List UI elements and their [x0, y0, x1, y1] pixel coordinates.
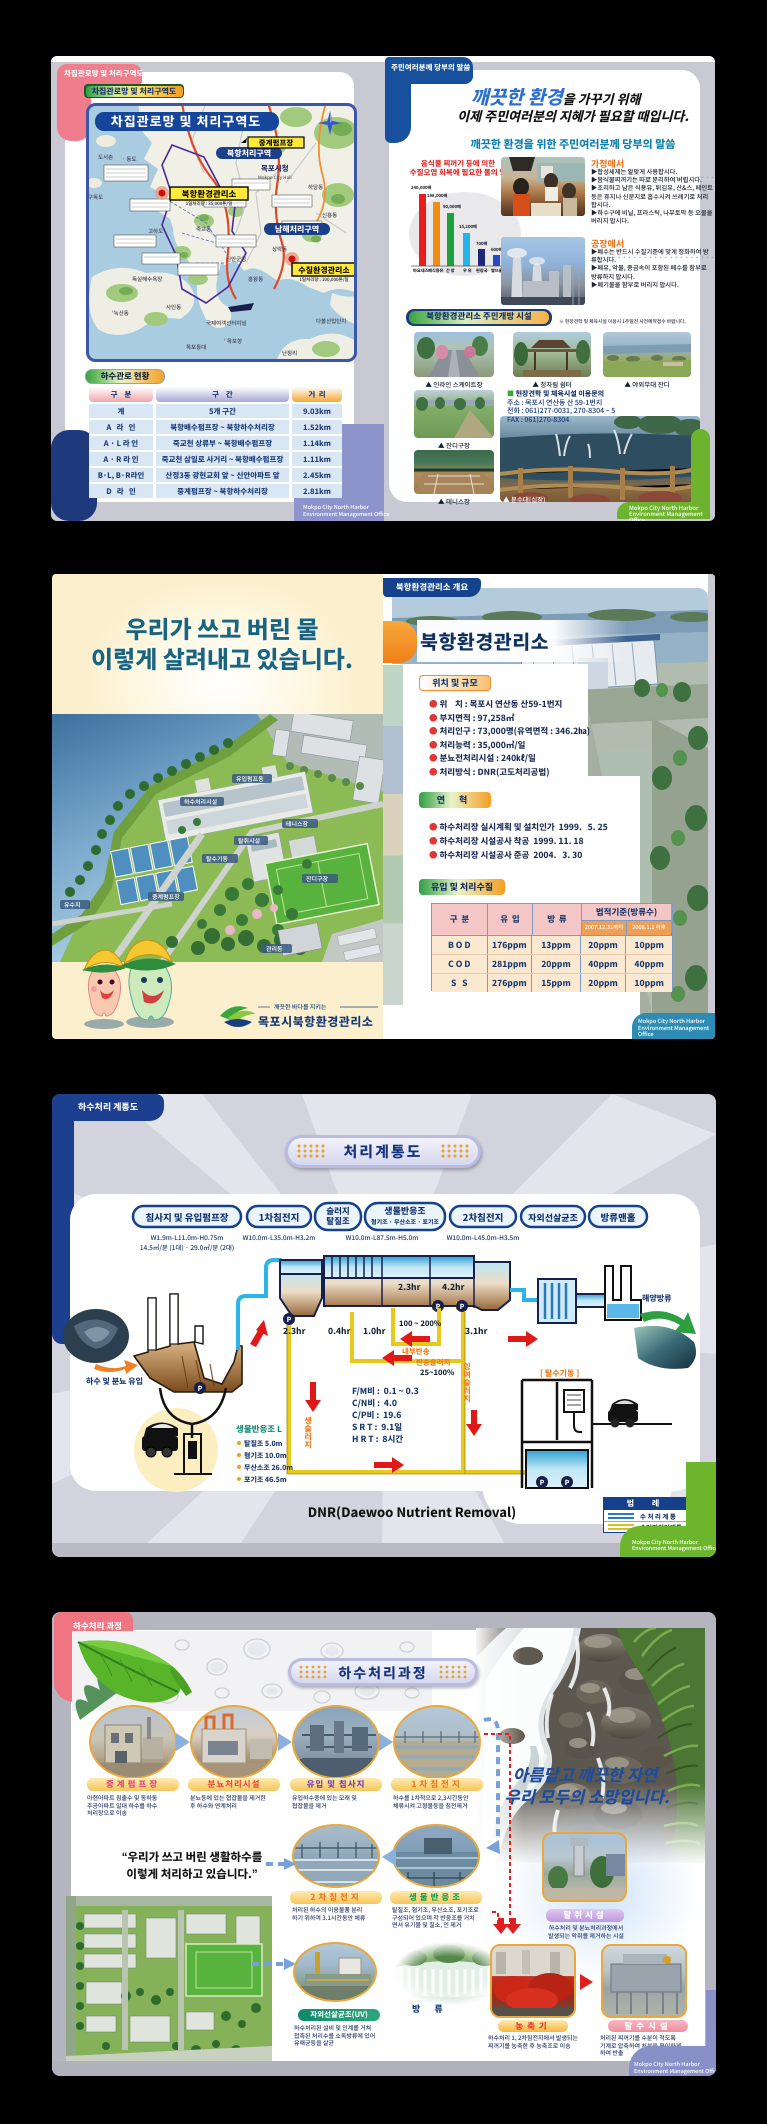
svg-text:마요네즈: 마요네즈 — [413, 268, 429, 274]
svg-text:C/P비 : 19.6: C/P비 : 19.6 — [352, 1409, 401, 1421]
svg-text:우 유: 우 유 — [463, 268, 472, 274]
svg-text:방류맨홀: 방류맨홀 — [601, 1210, 636, 1224]
svg-text:생슬러지: 생슬러지 — [303, 1416, 314, 1448]
svg-text:해양방류: 해양방류 — [642, 1293, 672, 1304]
svg-text:중계펌프장: 중계펌프장 — [259, 138, 294, 149]
svg-text:간 장: 간 장 — [446, 268, 455, 274]
svg-text:탈질조 5.0m: 탈질조 5.0m — [244, 1439, 283, 1449]
svg-text:생물반응조: 생물반응조 — [384, 1204, 425, 1217]
svg-text:P: P — [460, 1302, 465, 1312]
svg-text:남해처리구역: 남해처리구역 — [275, 224, 319, 235]
svg-text:하당동: 하당동 — [308, 183, 323, 191]
svg-text:W1.9m-L11.0m-H0.75m: W1.9m-L11.0m-H0.75m — [151, 1232, 224, 1242]
svg-text:90,000배: 90,000배 — [443, 204, 461, 210]
svg-text:혐기조 10.0m: 혐기조 10.0m — [244, 1451, 287, 1461]
svg-text:사인동: 사인동 — [166, 303, 181, 311]
svg-text:된장국: 된장국 — [476, 268, 488, 274]
svg-text:폐식용유: 폐식용유 — [428, 268, 444, 274]
svg-text:포기조 46.5m: 포기조 46.5m — [244, 1475, 287, 1485]
svg-text:다볼산업단지: 다볼산업단지 — [316, 317, 346, 325]
svg-text:독실해수욕장: 독실해수욕장 — [132, 275, 162, 283]
svg-text:침사지 및 유입펌프장: 침사지 및 유입펌프장 — [146, 1210, 229, 1224]
svg-text:2.3hr: 2.3hr — [283, 1325, 306, 1337]
svg-text:관리동: 관리동 — [266, 944, 283, 953]
svg-text:북항환경관리소: 북항환경관리소 — [182, 188, 237, 200]
svg-text:상락동: 상락동 — [272, 245, 287, 253]
svg-text:' 목포항: ' 목포항 — [224, 337, 242, 345]
svg-text:14.5㎥/분 (1대) · 29.0㎥/분 (2대): 14.5㎥/분 (1대) · 29.0㎥/분 (2대) — [140, 1242, 234, 1252]
svg-text:P: P — [198, 1384, 203, 1394]
svg-text:'녹산동: '녹산동 — [112, 309, 129, 317]
svg-text:1일처리량 : 35,000톤/일: 1일처리량 : 35,000톤/일 — [186, 201, 233, 207]
svg-text:깨끗한 바다를 지키는: 깨끗한 바다를 지키는 — [274, 1002, 327, 1011]
svg-text:25~100%: 25~100% — [420, 1367, 455, 1378]
svg-text:3.1hr: 3.1hr — [465, 1325, 488, 1337]
svg-text:4.2hr: 4.2hr — [442, 1281, 465, 1293]
svg-text:중계펌프장: 중계펌프장 — [152, 892, 180, 901]
svg-text:1.0hr: 1.0hr — [363, 1325, 386, 1337]
svg-text:15,200배: 15,200배 — [459, 224, 477, 230]
svg-text:S R T : 9.1일: S R T : 9.1일 — [352, 1421, 402, 1433]
svg-text:구독도: 구독도 — [88, 193, 103, 201]
svg-text:2.3hr: 2.3hr — [398, 1281, 421, 1293]
svg-text:100 ~ 200%: 100 ~ 200% — [399, 1318, 442, 1329]
svg-text:차집관로망 및 처리구역도: 차집관로망 및 처리구역도 — [111, 111, 262, 130]
svg-text:1차침전지: 1차침전지 — [259, 1210, 300, 1224]
svg-text:수질환경관리소: 수질환경관리소 — [298, 265, 350, 276]
svg-text:혐기조 · 무산소조 · 포기조: 혐기조 · 무산소조 · 포기조 — [371, 1217, 439, 1226]
svg-text:목포시북항환경관리소: 목포시북항환경관리소 — [258, 1013, 373, 1030]
svg-text:탈취시설: 탈취시설 — [238, 836, 260, 845]
svg-text:자외선살균조: 자외선살균조 — [528, 1211, 578, 1224]
svg-text:0.4hr: 0.4hr — [328, 1325, 351, 1337]
svg-text:유수지: 유수지 — [64, 900, 81, 909]
svg-text:하수 및 분뇨 유입: 하수 및 분뇨 유입 — [86, 1376, 143, 1387]
svg-text:700배: 700배 — [476, 241, 488, 247]
svg-text:H R T : 8시간: H R T : 8시간 — [352, 1433, 403, 1445]
svg-text:테니스장: 테니스장 — [286, 819, 309, 828]
svg-text:잉여슬러지: 잉여슬러지 — [462, 1362, 473, 1402]
svg-text:탈수기동: 탈수기동 — [206, 854, 229, 863]
svg-text:C/N비 : 4.0: C/N비 : 4.0 — [352, 1397, 397, 1409]
svg-text:1일처리량 : 100,000톤/일: 1일처리량 : 100,000톤/일 — [299, 277, 348, 283]
svg-text:북항처리구역: 북항처리구역 — [227, 148, 271, 159]
svg-text:240,000배: 240,000배 — [411, 185, 431, 191]
svg-text:W10.0m-L35.0m-H3.2m: W10.0m-L35.0m-H3.2m — [243, 1232, 316, 1242]
svg-text:신안군청: 신안군청 — [226, 255, 246, 263]
svg-text:W10.0m-L87.5m-H5.0m: W10.0m-L87.5m-H5.0m — [346, 1232, 419, 1242]
svg-text:P: P — [287, 1315, 292, 1325]
svg-text:P: P — [540, 1478, 545, 1488]
svg-text:목포등대: 목포등대 — [186, 343, 206, 351]
svg-text:도서촌: 도서촌 — [98, 153, 113, 161]
svg-text:무산소조 26.0m: 무산소조 26.0m — [244, 1463, 293, 1473]
svg-text:2차침전지: 2차침전지 — [463, 1210, 504, 1224]
svg-text:· 동도: · 동도 — [122, 155, 137, 163]
svg-text:생물반응조 L: 생물반응조 L — [236, 1423, 282, 1435]
svg-text:국제여객선터미널: 국제여객선터미널 — [206, 319, 246, 327]
svg-text:홍왕동: 홍왕동 — [248, 275, 263, 283]
svg-text:하수처리시설: 하수처리시설 — [184, 797, 217, 806]
svg-text:죽교동: 죽교동 — [196, 225, 211, 233]
svg-text:유입펌프동: 유입펌프동 — [236, 774, 264, 783]
svg-text:잔디구장: 잔디구장 — [306, 874, 329, 883]
svg-text:F/M비 : 0.1 ~ 0.3: F/M비 : 0.1 ~ 0.3 — [352, 1385, 419, 1397]
svg-text:탈질조: 탈질조 — [326, 1215, 350, 1227]
svg-text:난정리: 난정리 — [282, 349, 297, 357]
svg-text:신흥동: 신흥동 — [322, 211, 337, 219]
svg-text:목포시청: 목포시청 — [261, 163, 289, 174]
svg-text:고하도: 고하도 — [148, 227, 163, 235]
svg-text:P: P — [565, 1478, 570, 1488]
svg-text:Mokpo City Hall: Mokpo City Hall — [258, 175, 292, 181]
svg-text:W10.0m-L45.0m-H3.5m: W10.0m-L45.0m-H3.5m — [447, 1232, 520, 1242]
svg-text:198,000배: 198,000배 — [427, 193, 447, 199]
svg-text:[ 탈수기동 ]: [ 탈수기동 ] — [540, 1368, 579, 1379]
